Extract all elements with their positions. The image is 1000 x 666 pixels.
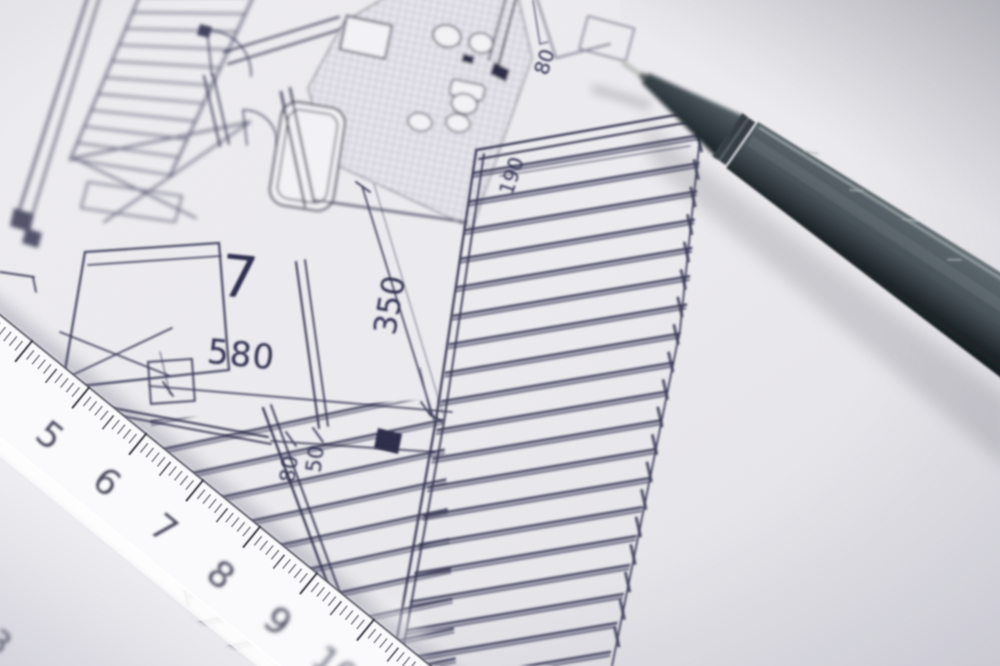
photo-architectural-plan: 7 580 xyxy=(0,0,1000,666)
film-grain xyxy=(0,0,1000,666)
